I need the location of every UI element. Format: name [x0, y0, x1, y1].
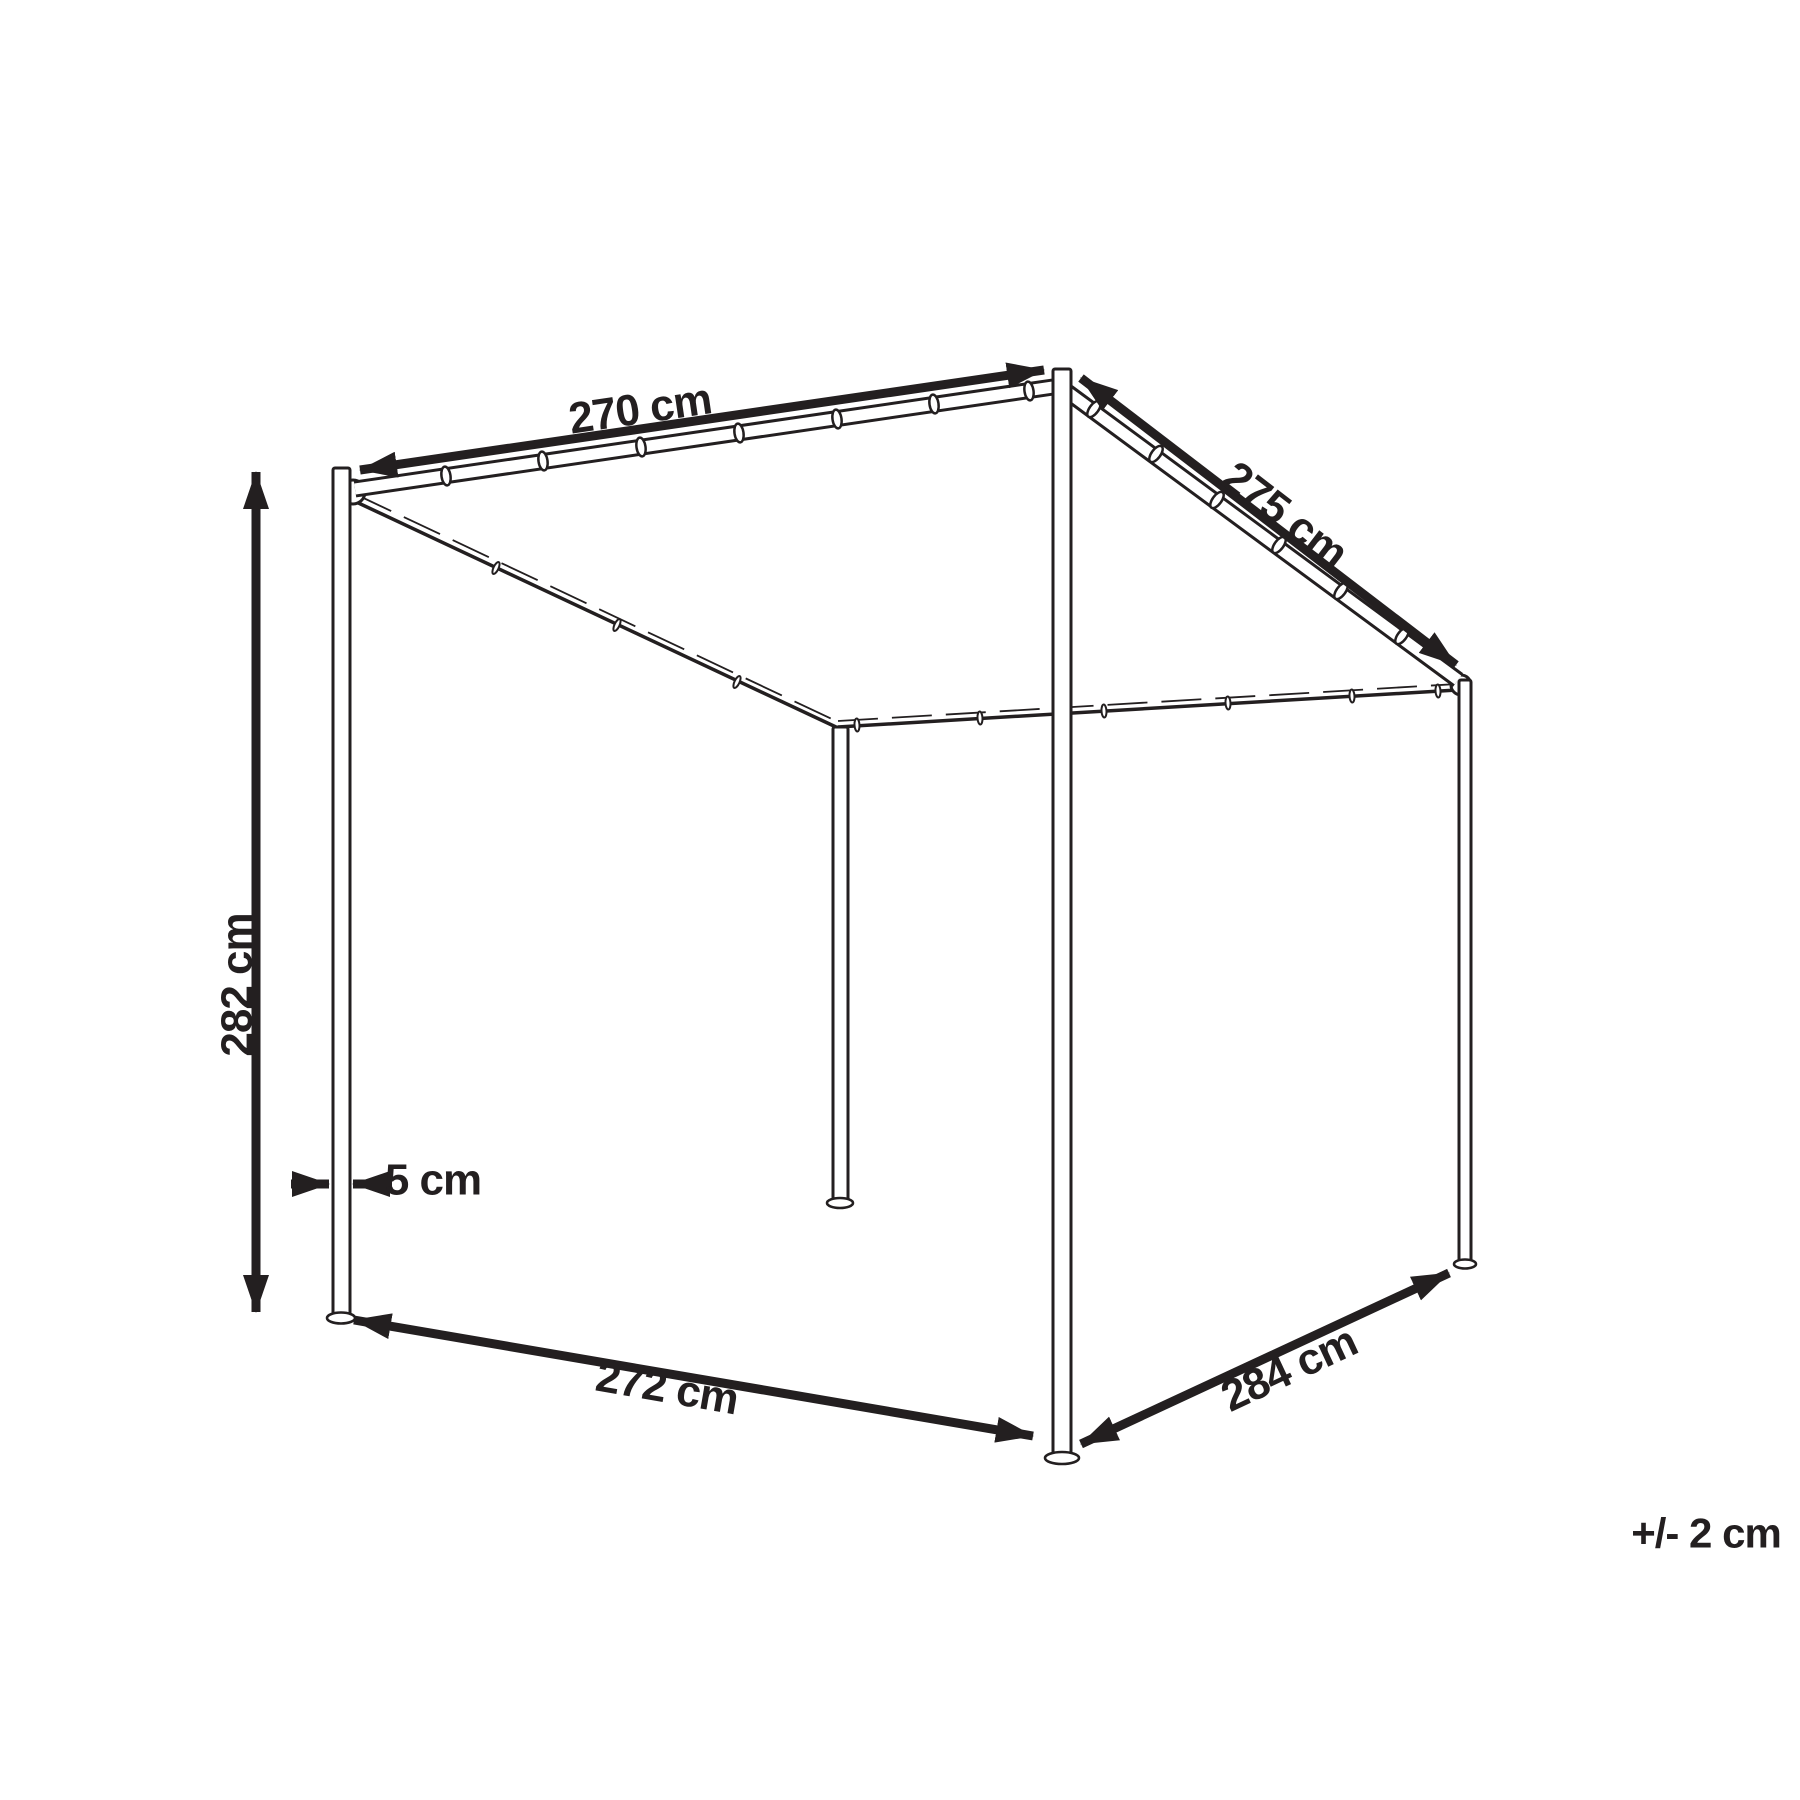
tolerance-note: +/- 2 cm: [1631, 1510, 1781, 1557]
diagram-background: [0, 0, 1800, 1800]
right-post-foot: [1454, 1260, 1476, 1269]
interior-post-foot: [827, 1198, 853, 1208]
dimension-label-post-thickness: 5 cm: [385, 1156, 481, 1205]
middle-post-foot: [1045, 1452, 1079, 1464]
front-left-post-foot: [327, 1313, 355, 1324]
dimension-label-height: 282 cm: [213, 913, 262, 1056]
pergola-dimension-diagram: 270 cm 275 cm 282 cm 5 cm 272 cm 284 cm …: [0, 0, 1800, 1800]
right-post: [1459, 680, 1471, 1264]
front-left-post: [333, 468, 350, 1318]
middle-post: [1053, 369, 1071, 1458]
interior-post: [833, 727, 848, 1203]
